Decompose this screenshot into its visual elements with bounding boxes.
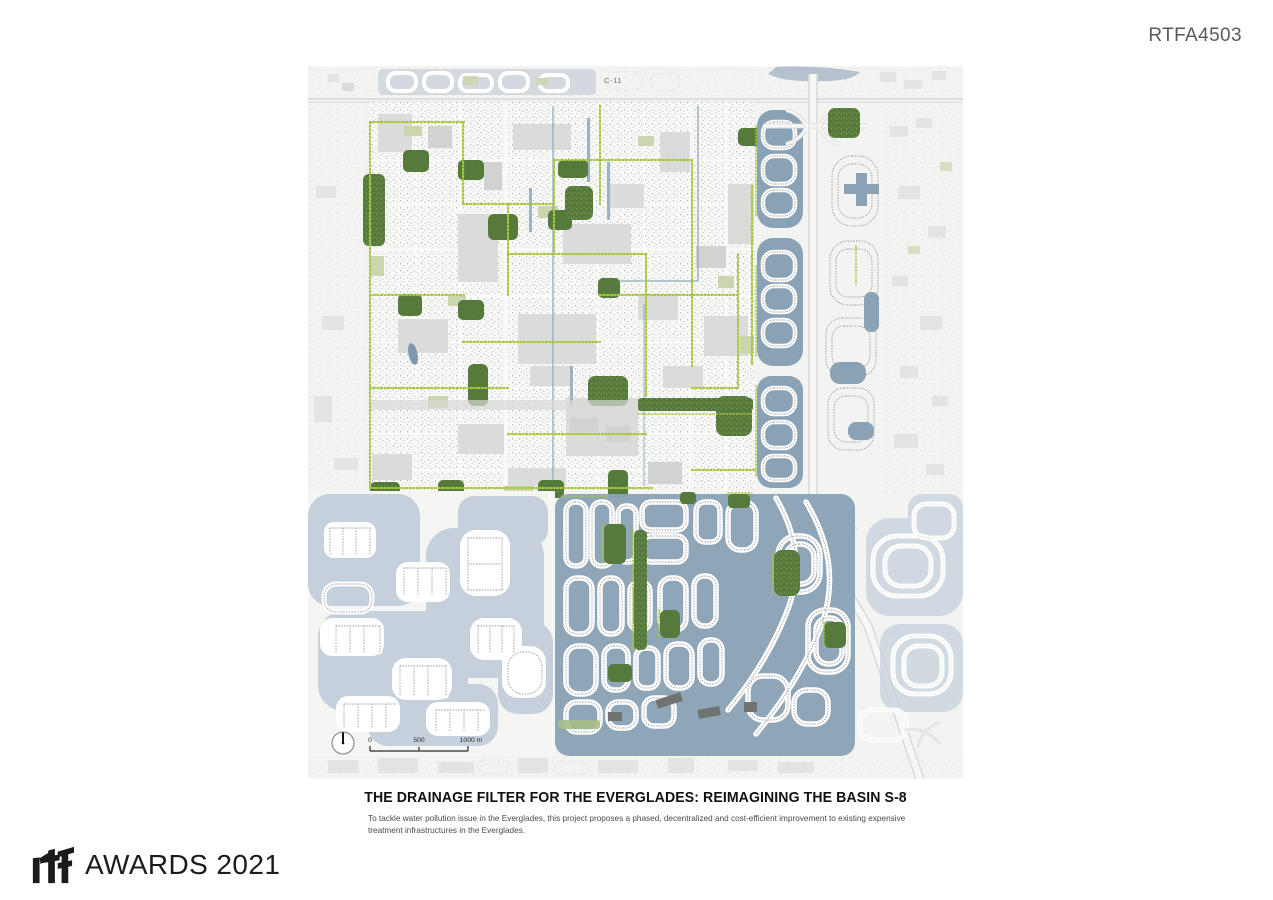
presentation-board: { "page": { "code": "RTFA4503" }, "map":… bbox=[0, 0, 1273, 900]
submission-code: RTFA4503 bbox=[1148, 25, 1242, 47]
map-illustration: C-11 bbox=[308, 66, 963, 779]
board-title: THE DRAINAGE FILTER FOR THE EVERGLADES: … bbox=[328, 789, 944, 806]
grid-district bbox=[363, 102, 762, 498]
basin-communities bbox=[555, 492, 855, 756]
north-compass bbox=[332, 732, 354, 754]
awards-footer: AWARDS 2021 bbox=[30, 845, 280, 885]
context-east-strip bbox=[883, 102, 963, 492]
southwest-lake-communities bbox=[308, 491, 555, 756]
awards-label: AWARDS 2021 bbox=[85, 849, 280, 881]
board-description: To tackle water pollution issue in the E… bbox=[368, 812, 914, 837]
context-west-strip bbox=[308, 102, 370, 492]
lakes-band bbox=[756, 110, 803, 488]
rtf-logo-icon bbox=[30, 845, 74, 885]
context-north-band bbox=[308, 66, 963, 98]
canal-label: C-11 bbox=[604, 76, 622, 85]
scale-500: 500 bbox=[413, 737, 425, 744]
scale-1000: 1000 m bbox=[460, 737, 483, 744]
scale-zero: 0 bbox=[368, 737, 372, 744]
site-map: C-11 bbox=[308, 66, 963, 779]
